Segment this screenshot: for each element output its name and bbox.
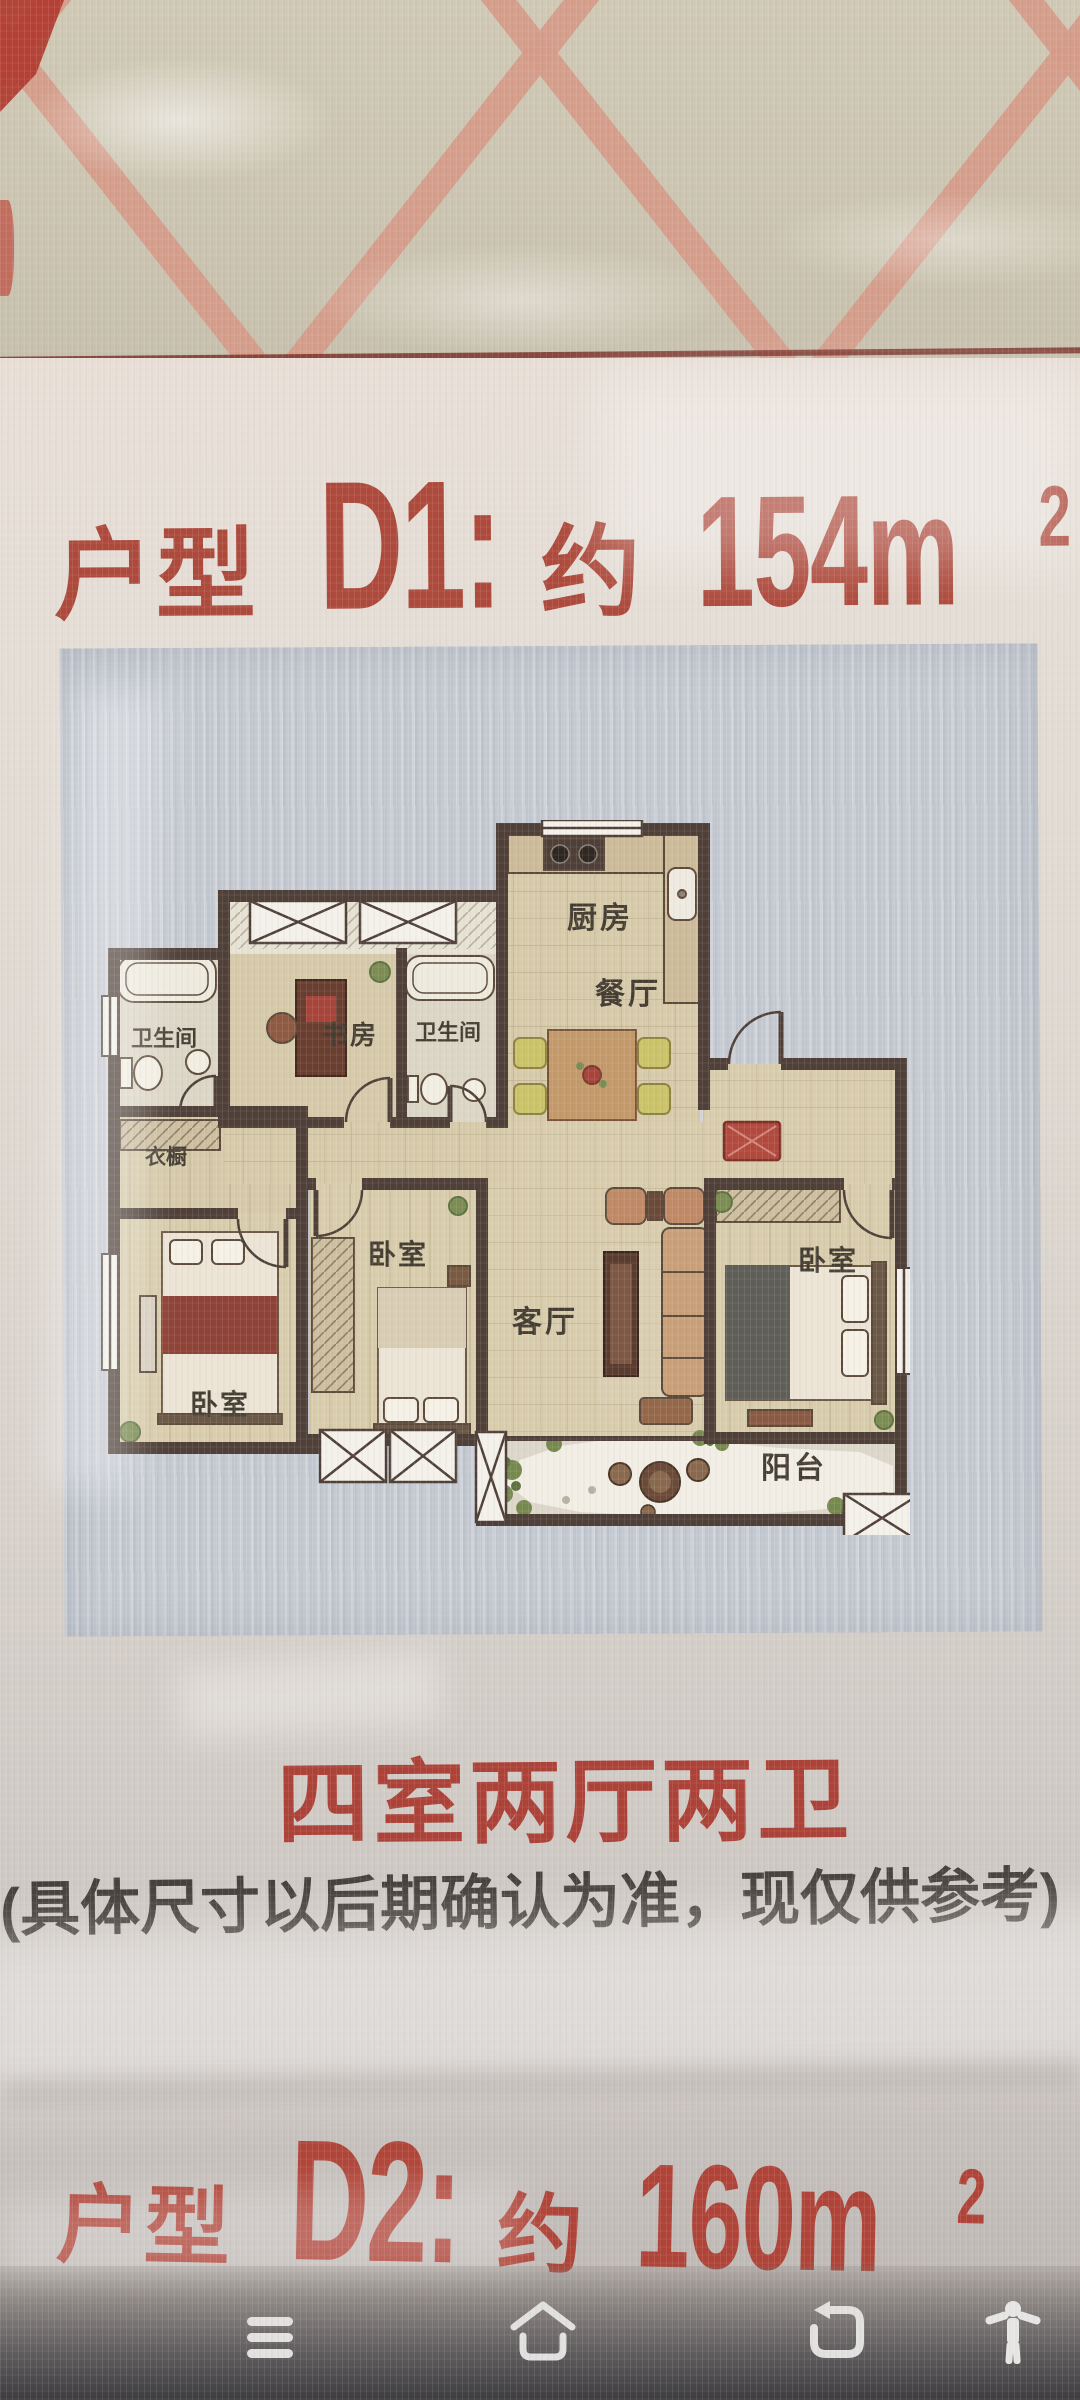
accessibility-person-icon xyxy=(977,2296,1049,2368)
window-x-icon xyxy=(390,1430,456,1482)
d1-code: D1: xyxy=(318,438,501,650)
d2-prefix: 户型 xyxy=(55,2177,233,2277)
window-x-icon xyxy=(476,1432,506,1522)
window-x-icon xyxy=(250,901,346,943)
window-x-icon xyxy=(360,901,456,943)
entry-door xyxy=(729,1012,781,1064)
menu-icon xyxy=(234,2296,306,2368)
menu-button[interactable] xyxy=(234,2296,306,2368)
home-icon xyxy=(507,2296,579,2368)
window-icon xyxy=(102,996,118,1056)
back-button[interactable] xyxy=(800,2296,872,2368)
room-label-bedroom-mid: 卧室 xyxy=(368,1238,428,1270)
window-x-icon xyxy=(844,1494,910,1535)
room-label-living: 客厅 xyxy=(512,1305,578,1339)
room-label-closet: 衣橱 xyxy=(145,1145,187,1169)
room-label-dining: 餐厅 xyxy=(595,978,661,1011)
doormat xyxy=(724,1122,780,1160)
room-label-balcony: 阳台 xyxy=(761,1451,827,1485)
android-nav-bar xyxy=(0,2266,1080,2400)
room-label-study: 书房 xyxy=(322,1020,378,1050)
room-label-bathroom-left: 卫生间 xyxy=(131,1026,197,1051)
d1-area: 154m xyxy=(696,460,959,643)
back-icon xyxy=(800,2296,872,2368)
room-label-bedroom-left: 卧室 xyxy=(190,1388,250,1420)
disclaimer-text: (具体尺寸以后期确认为准，现仅供参考) xyxy=(0,1847,1061,1949)
red-edge-mark xyxy=(0,200,14,296)
d2-sup: 2 xyxy=(955,2151,986,2243)
d1-sup: 2 xyxy=(1038,468,1071,567)
screenshot-root: { "poster": { "unit_d1": { "prefix": "户型… xyxy=(0,0,1080,2400)
kitchen-window-icon xyxy=(542,820,642,836)
unit-d1-title: 户型D1:约154m2 xyxy=(53,434,1080,652)
window-icon xyxy=(102,1254,118,1370)
d1-prefix: 户型 xyxy=(53,519,258,632)
room-label-bedroom-master: 卧室 xyxy=(798,1244,858,1276)
fabric-sheen xyxy=(0,0,1080,372)
accessibility-button[interactable] xyxy=(977,2296,1049,2368)
window-icon xyxy=(896,1268,910,1374)
window-x-icon xyxy=(320,1430,386,1482)
room-label-kitchen: 厨房 xyxy=(567,902,633,935)
room-label-bathroom-mid: 卫生间 xyxy=(415,1020,481,1045)
home-button[interactable] xyxy=(507,2296,579,2368)
floorplan-diagram: 厨房 餐厅 客厅 阳台 卧室 卧室 卧室 卫生间 卫生间 书房 衣橱 xyxy=(100,820,910,1535)
layout-summary: 四室两厅两卫 xyxy=(276,1725,853,1863)
d1-approx: 约 xyxy=(540,516,643,629)
